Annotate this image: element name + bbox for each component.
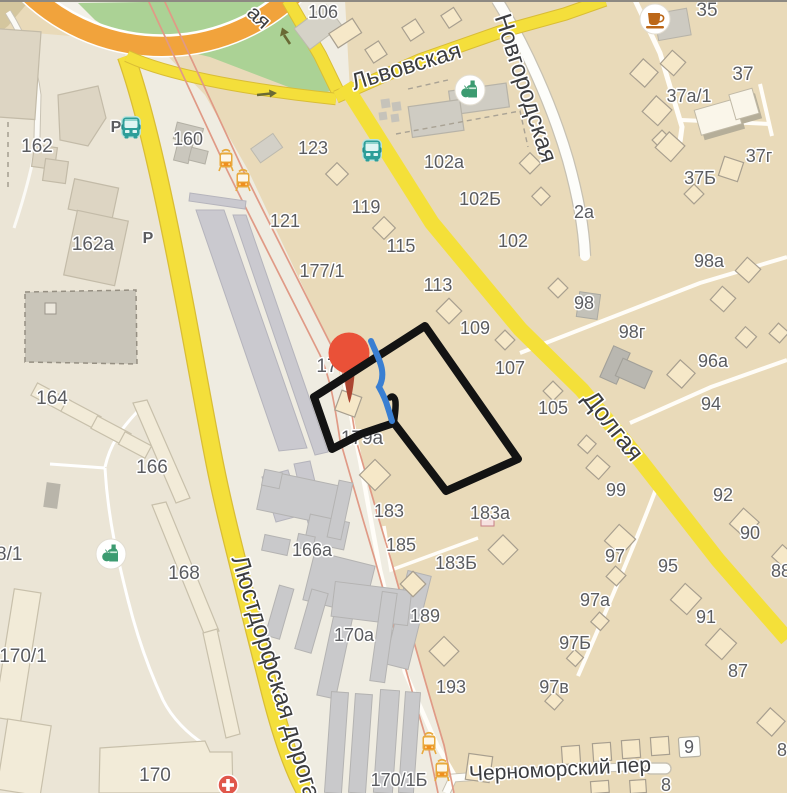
svg-text:97в: 97в	[539, 677, 569, 697]
svg-text:170/1Б: 170/1Б	[371, 770, 428, 790]
svg-text:170a: 170a	[334, 625, 375, 645]
svg-text:98г: 98г	[619, 322, 646, 342]
svg-text:185: 185	[386, 535, 416, 555]
svg-text:123: 123	[298, 138, 328, 158]
svg-text:102a: 102a	[424, 152, 465, 172]
svg-text:98: 98	[574, 293, 594, 313]
svg-text:160: 160	[173, 129, 203, 149]
svg-text:170/1: 170/1	[0, 646, 47, 667]
svg-text:8: 8	[661, 775, 671, 793]
svg-text:183: 183	[374, 501, 404, 521]
svg-text:9: 9	[684, 737, 694, 757]
svg-text:97Б: 97Б	[559, 633, 591, 653]
svg-text:37г: 37г	[746, 146, 773, 166]
svg-text:168: 168	[168, 563, 200, 584]
svg-text:115: 115	[387, 236, 416, 256]
svg-text:97a: 97a	[580, 590, 611, 610]
svg-text:96a: 96a	[698, 351, 729, 371]
svg-text:109: 109	[460, 318, 490, 338]
svg-text:97: 97	[605, 546, 625, 566]
svg-text:8/1: 8/1	[0, 544, 22, 565]
svg-text:8: 8	[777, 740, 787, 760]
svg-text:102: 102	[498, 231, 528, 251]
svg-text:106: 106	[308, 2, 338, 22]
svg-text:119: 119	[352, 197, 381, 217]
svg-text:166a: 166a	[292, 540, 333, 560]
svg-text:102Б: 102Б	[459, 189, 501, 209]
svg-text:P: P	[111, 119, 122, 136]
svg-text:162: 162	[21, 136, 53, 157]
svg-text:2a: 2a	[574, 202, 595, 222]
svg-text:37a/1: 37a/1	[666, 86, 711, 106]
svg-text:37Б: 37Б	[684, 168, 716, 188]
svg-text:107: 107	[495, 358, 525, 378]
svg-text:183Б: 183Б	[435, 553, 477, 573]
svg-text:88: 88	[771, 561, 787, 581]
svg-text:90: 90	[740, 523, 760, 543]
svg-text:193: 193	[436, 677, 466, 697]
svg-text:87: 87	[728, 661, 748, 681]
svg-text:166: 166	[136, 457, 168, 478]
svg-text:177/1: 177/1	[299, 261, 344, 281]
svg-text:95: 95	[658, 556, 678, 576]
svg-text:37: 37	[732, 64, 753, 85]
svg-text:164: 164	[36, 388, 68, 409]
svg-text:94: 94	[701, 394, 721, 414]
svg-text:P: P	[143, 230, 154, 247]
svg-text:35: 35	[696, 0, 717, 21]
svg-text:105: 105	[538, 398, 568, 418]
svg-text:99: 99	[606, 480, 626, 500]
svg-text:92: 92	[713, 485, 733, 505]
svg-text:113: 113	[424, 275, 453, 295]
svg-text:162a: 162a	[72, 234, 115, 255]
svg-text:189: 189	[410, 606, 440, 626]
svg-text:121: 121	[270, 211, 300, 231]
svg-text:183a: 183a	[470, 503, 511, 523]
svg-text:91: 91	[696, 607, 716, 627]
svg-text:98a: 98a	[694, 251, 725, 271]
svg-text:170: 170	[139, 765, 171, 786]
